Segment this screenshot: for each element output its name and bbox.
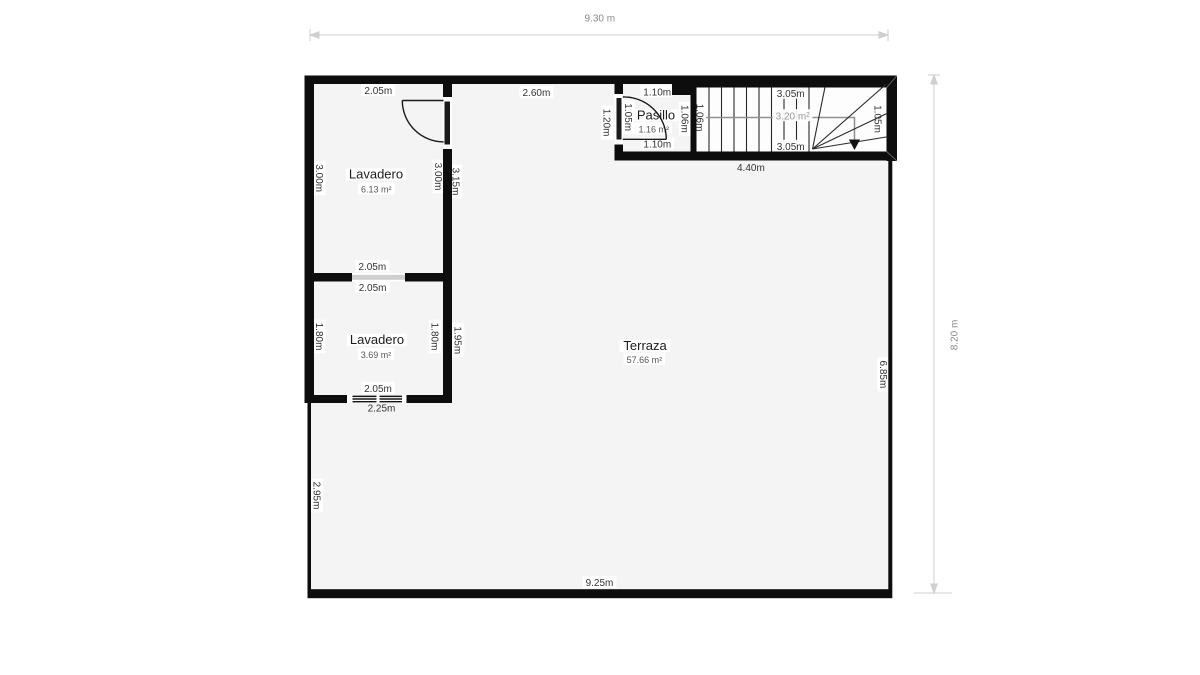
- svg-text:2.05m: 2.05m: [359, 283, 387, 294]
- svg-text:1.95m: 1.95m: [452, 326, 463, 354]
- svg-text:2.05m: 2.05m: [364, 384, 392, 395]
- svg-text:6.13 m²: 6.13 m²: [361, 185, 392, 195]
- svg-text:1.06m: 1.06m: [679, 105, 690, 133]
- svg-text:9.30 m: 9.30 m: [585, 14, 616, 25]
- svg-text:1.10m: 1.10m: [643, 88, 671, 99]
- svg-text:1.80m: 1.80m: [313, 323, 324, 351]
- svg-text:1.06m: 1.06m: [694, 104, 705, 132]
- svg-text:2.95m: 2.95m: [310, 482, 321, 510]
- svg-text:1.20m: 1.20m: [601, 109, 612, 137]
- svg-text:8.20 m: 8.20 m: [950, 320, 961, 351]
- svg-text:4.40m: 4.40m: [737, 163, 765, 174]
- svg-text:Pasillo: Pasillo: [637, 107, 675, 122]
- svg-text:2.60m: 2.60m: [523, 88, 551, 99]
- svg-text:57.66 m²: 57.66 m²: [627, 355, 663, 365]
- svg-text:2.05m: 2.05m: [364, 86, 392, 97]
- svg-text:6.85m: 6.85m: [877, 361, 888, 389]
- svg-text:1.80m: 1.80m: [428, 323, 439, 351]
- svg-text:3.69 m²: 3.69 m²: [361, 350, 392, 360]
- svg-text:2.25m: 2.25m: [368, 403, 396, 414]
- svg-text:Lavadero: Lavadero: [350, 332, 404, 347]
- svg-text:2.05m: 2.05m: [358, 262, 386, 273]
- svg-text:3.05m: 3.05m: [777, 89, 805, 100]
- svg-text:3.00m: 3.00m: [432, 163, 443, 191]
- svg-text:3.05m: 3.05m: [777, 142, 805, 153]
- svg-text:1.05m: 1.05m: [871, 105, 882, 133]
- svg-text:Terraza: Terraza: [623, 338, 667, 353]
- svg-text:3.00m: 3.00m: [313, 164, 324, 192]
- svg-text:Lavadero: Lavadero: [349, 167, 403, 182]
- svg-text:1.10m: 1.10m: [643, 139, 671, 150]
- svg-text:1.05m: 1.05m: [622, 103, 633, 131]
- svg-text:9.25m: 9.25m: [586, 578, 614, 589]
- svg-text:3.20 m²: 3.20 m²: [776, 111, 811, 122]
- svg-text:3.15m: 3.15m: [449, 168, 460, 196]
